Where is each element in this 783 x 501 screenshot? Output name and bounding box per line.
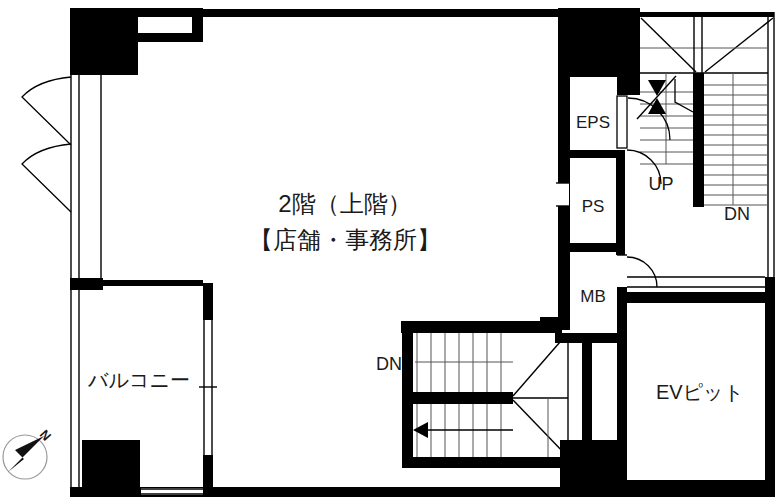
room-label-eps: EPS xyxy=(576,113,610,132)
floor-plan-svg: 2階（上階） 【店舗・事務所】 EPS PS MB UP DN DN バルコニー… xyxy=(0,0,783,501)
floor-title-line1: 2階（上階） xyxy=(278,190,411,217)
room-label-ev-pit: EVピット xyxy=(656,381,744,403)
floor-title-line2: 【店舗・事務所】 xyxy=(249,226,441,253)
ps-wall-opening xyxy=(556,183,569,206)
room-label-mb: MB xyxy=(580,287,606,306)
room-label-ps: PS xyxy=(582,197,605,216)
room-label-balcony: バルコニー xyxy=(87,369,190,391)
stair-door-leaf xyxy=(617,96,627,148)
floor-plan: 2階（上階） 【店舗・事務所】 EPS PS MB UP DN DN バルコニー… xyxy=(0,0,783,501)
stair-dn-lower-label: DN xyxy=(376,354,402,374)
stair-dn-upper-label: DN xyxy=(724,204,750,224)
stair-up-label: UP xyxy=(648,174,673,194)
